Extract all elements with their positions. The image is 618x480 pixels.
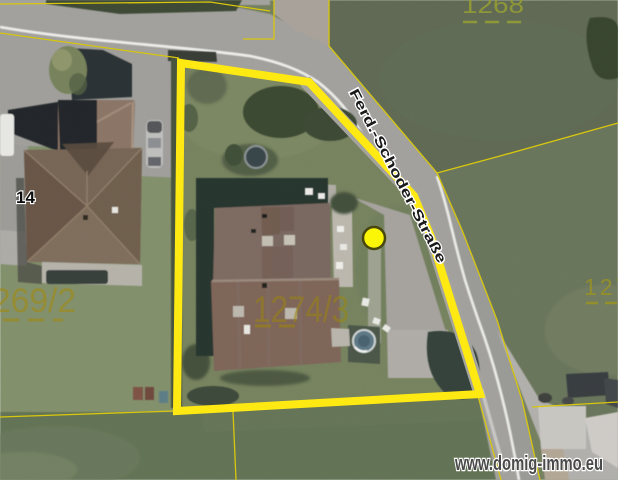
svg-text:127: 127 xyxy=(584,274,618,300)
svg-text:1268: 1268 xyxy=(462,0,524,19)
svg-text:14: 14 xyxy=(16,188,35,207)
svg-text:1274/3: 1274/3 xyxy=(253,289,349,330)
svg-text:www.domig-immo.eu: www.domig-immo.eu xyxy=(454,452,603,475)
svg-text:269/2: 269/2 xyxy=(0,282,76,320)
